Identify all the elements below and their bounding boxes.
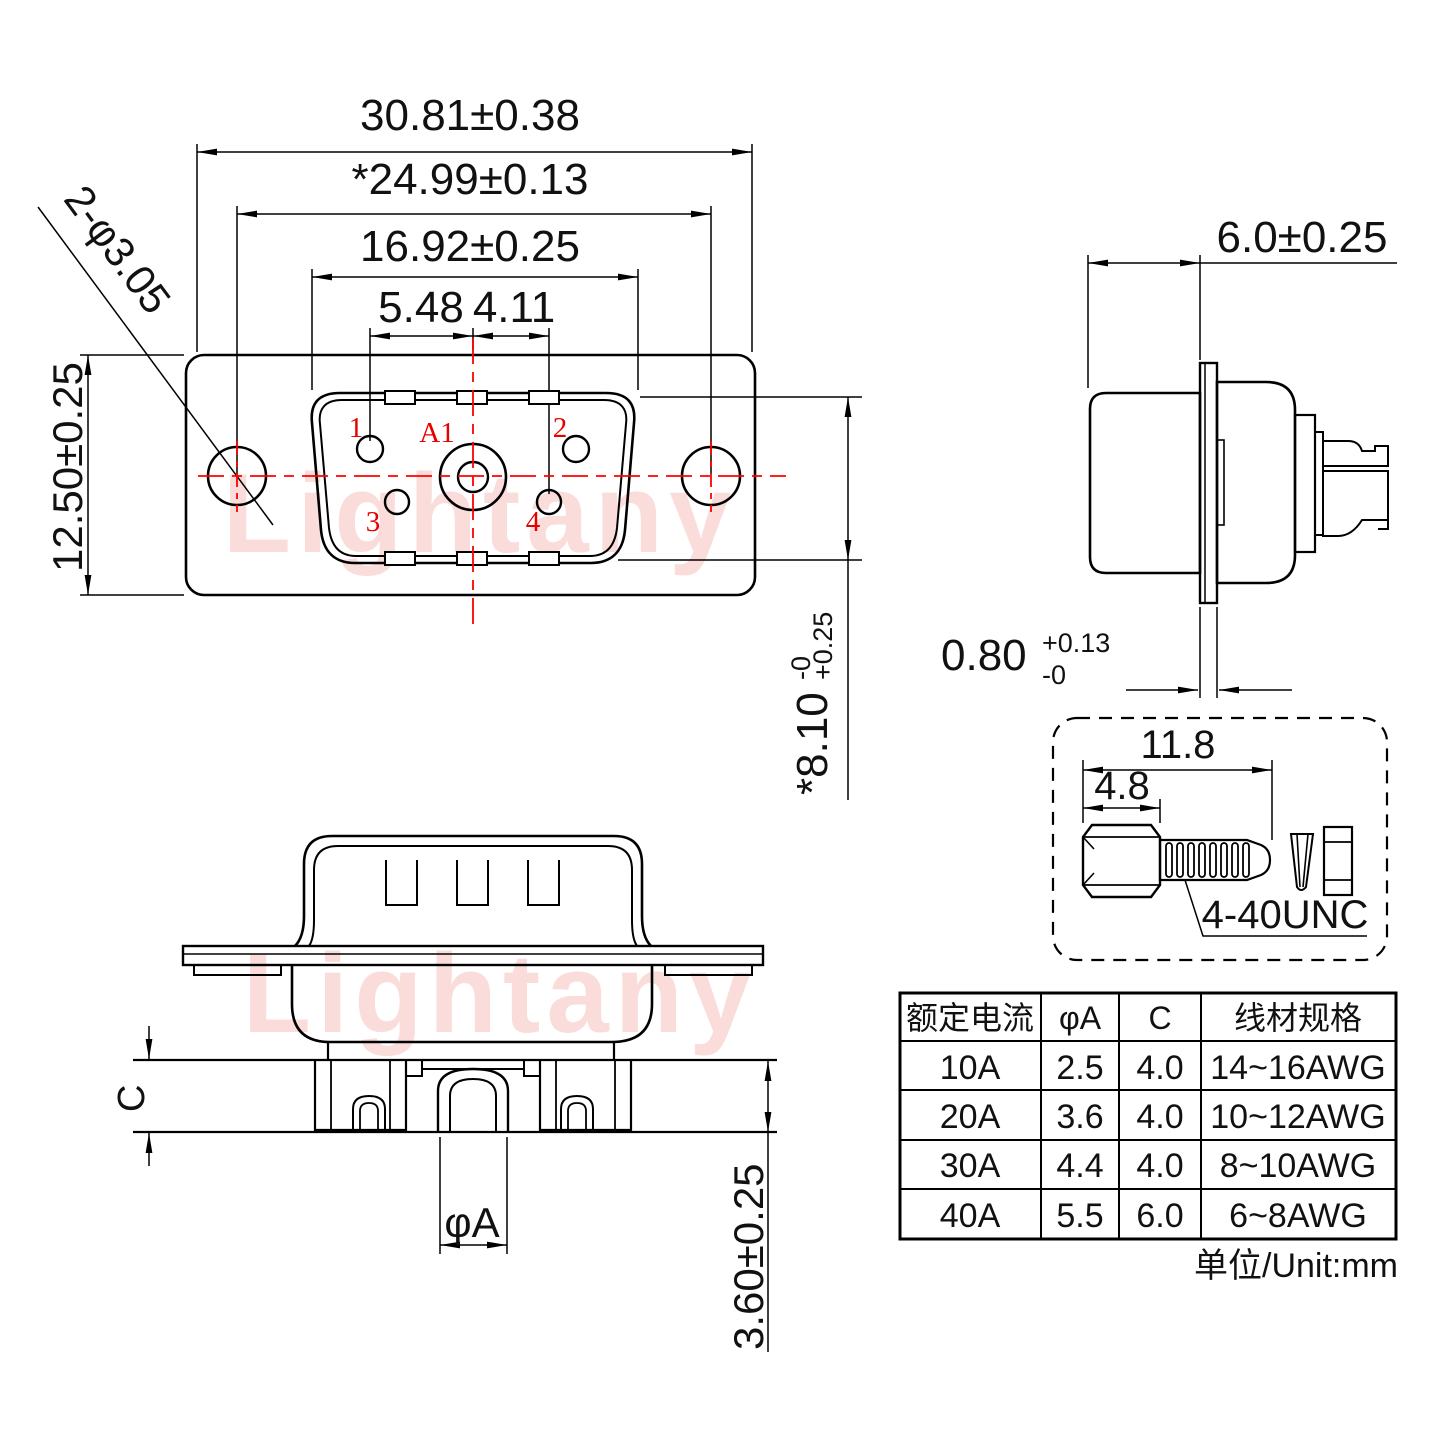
terminal-step: [1315, 432, 1323, 535]
notch: [385, 391, 415, 404]
notch: [529, 552, 559, 565]
dim-label-shell-width: 16.92±0.25: [360, 222, 580, 271]
pin-right-arch-outer: [561, 1096, 593, 1130]
technical-drawing-page: Lightany Lightany 30.81±0.38 *24.99±0.13…: [0, 0, 1440, 1440]
cell-wire: 10~12AWG: [1210, 1098, 1385, 1136]
dim-label-tail: 3.60±0.25: [725, 1163, 772, 1350]
pin-right-arch-inner: [568, 1103, 586, 1130]
cell-c: 6.0: [1136, 1197, 1183, 1235]
table-header-phi-a: φA: [1059, 1000, 1102, 1036]
notch: [457, 552, 487, 565]
dim-label-pin-right: 4.11: [473, 283, 555, 332]
table-row: 10A 2.5 4.0 14~16AWG: [940, 1049, 1386, 1087]
thread: [1243, 843, 1249, 877]
pin-label-4: 4: [526, 506, 541, 538]
thread: [1188, 843, 1194, 877]
cell-phi-a: 5.5: [1056, 1197, 1103, 1235]
dim-label-phi-a: φA: [444, 1199, 499, 1246]
screw-head-chamfer: [1083, 837, 1094, 849]
table-row: 30A 4.4 4.0 8~10AWG: [940, 1147, 1377, 1185]
screw-head: [1083, 825, 1160, 897]
nut-part: [1324, 827, 1352, 895]
screw-head-chamfer: [1083, 873, 1094, 885]
center-contact-shoulder: [422, 1060, 524, 1069]
dim-label-c: C: [111, 1085, 153, 1112]
thread: [1166, 843, 1172, 877]
front-view: 30.81±0.38 *24.99±0.13 16.92±0.25 5.48 4…: [38, 91, 862, 800]
dim-label-c-group: C: [111, 1085, 153, 1112]
cell-wire: 8~10AWG: [1220, 1147, 1377, 1185]
notch: [457, 391, 487, 404]
pin-left-arch-inner: [360, 1103, 378, 1130]
dim-label-mount-width: *24.99±0.13: [351, 155, 588, 204]
cell-phi-a: 3.6: [1056, 1098, 1103, 1136]
unit-note: 单位/Unit:mm: [1194, 1247, 1398, 1285]
thread-spec-label: 4-40UNC: [1202, 893, 1369, 937]
cell-current: 40A: [940, 1197, 1001, 1235]
dim-label-screw-head: 4.8: [1094, 764, 1150, 808]
pin-label-2: 2: [553, 412, 568, 444]
dim-label-holes: 2-φ3.05: [55, 177, 180, 323]
thread: [1232, 843, 1238, 877]
thread: [1221, 843, 1227, 877]
dim-label-flange-thickness: 0.80: [941, 631, 1027, 680]
spec-table: 额定电流 φA C 线材规格 10A 2.5 4.0 14~16AWG 20A …: [900, 993, 1398, 1285]
cell-c: 4.0: [1136, 1098, 1183, 1136]
thread: [1177, 843, 1183, 877]
pin-label-1: 1: [349, 412, 364, 444]
terminal-prong-lower: [1323, 471, 1388, 536]
shell-outer-profile: [295, 836, 651, 946]
dim-label-shell-height-group: *8.10 +0.25 -0: [786, 612, 838, 795]
cell-c: 4.0: [1136, 1049, 1183, 1087]
dim-label-depth: 6.0±0.25: [1217, 213, 1388, 262]
dsub-connector-drawing: Lightany Lightany 30.81±0.38 *24.99±0.13…: [0, 0, 1440, 1440]
dim-tol-minus: -0: [786, 656, 816, 680]
cell-wire: 14~16AWG: [1210, 1049, 1385, 1087]
table-header-current: 额定电流: [906, 1000, 1034, 1036]
front-shell-side: [1217, 382, 1295, 583]
cell-phi-a: 2.5: [1056, 1049, 1103, 1087]
cell-current: 20A: [940, 1098, 1001, 1136]
terminal-tip-step: [1378, 520, 1388, 529]
shell-slot: [528, 860, 559, 905]
pin-label-a1: A1: [419, 417, 454, 449]
cell-current: 10A: [940, 1049, 1001, 1087]
dim-label-outer-width: 30.81±0.38: [360, 91, 580, 140]
table-header-wire: 线材规格: [1234, 1000, 1362, 1036]
thread: [1199, 843, 1205, 877]
dim-label-pin-left: 5.48: [378, 283, 464, 332]
table-row: 40A 5.5 6.0 6~8AWG: [940, 1197, 1367, 1235]
watermark-text-bottom: Lightany: [243, 931, 758, 1056]
notch: [529, 391, 559, 404]
center-contact-arch-inner: [450, 1079, 496, 1132]
cell-phi-a: 4.4: [1056, 1147, 1103, 1185]
cell-current: 30A: [940, 1147, 1001, 1185]
rear-insulator-body: [1090, 393, 1200, 573]
cell-wire: 6~8AWG: [1229, 1197, 1367, 1235]
dim-label-shell-height: *8.10: [788, 692, 837, 795]
cell-c: 4.0: [1136, 1147, 1183, 1185]
pin-left-arch-outer: [353, 1096, 385, 1130]
table-row: 20A 3.6 4.0 10~12AWG: [940, 1098, 1386, 1136]
side-view: 6.0±0.25 0.80 +0.13 -0: [941, 213, 1397, 698]
pin-label-3: 3: [366, 506, 381, 538]
table-header-c: C: [1148, 1000, 1171, 1036]
flange-plate-side: [1200, 363, 1217, 603]
wedge-inner-line: [1297, 834, 1300, 887]
dim-label-screw-length: 11.8: [1141, 723, 1216, 767]
dim-label-holes-group: 2-φ3.05: [55, 177, 180, 323]
notch: [385, 552, 415, 565]
dim-tol-plus: +0.13: [1042, 628, 1110, 658]
terminal-prong-upper: [1323, 441, 1388, 466]
terminal-block: [1295, 415, 1315, 552]
dim-label-height: 12.50±0.25: [44, 362, 91, 572]
screw-detail: 11.8 4.8 4-40UNC: [1053, 718, 1387, 960]
bottom-view: C 3.60±0.25 φA: [111, 836, 777, 1352]
wedge-part: [1291, 834, 1313, 890]
screw-threads: [1166, 843, 1249, 877]
dim-label-height-group: 12.50±0.25: [44, 362, 91, 572]
shell-slot: [386, 860, 417, 905]
thread: [1210, 843, 1216, 877]
center-contact-tab: [406, 1060, 422, 1076]
dim-label-tail-group: 3.60±0.25: [725, 1163, 772, 1350]
center-contact-tab: [524, 1060, 540, 1076]
shell-slot: [457, 860, 488, 905]
dim-tol-minus: -0: [1042, 660, 1066, 690]
